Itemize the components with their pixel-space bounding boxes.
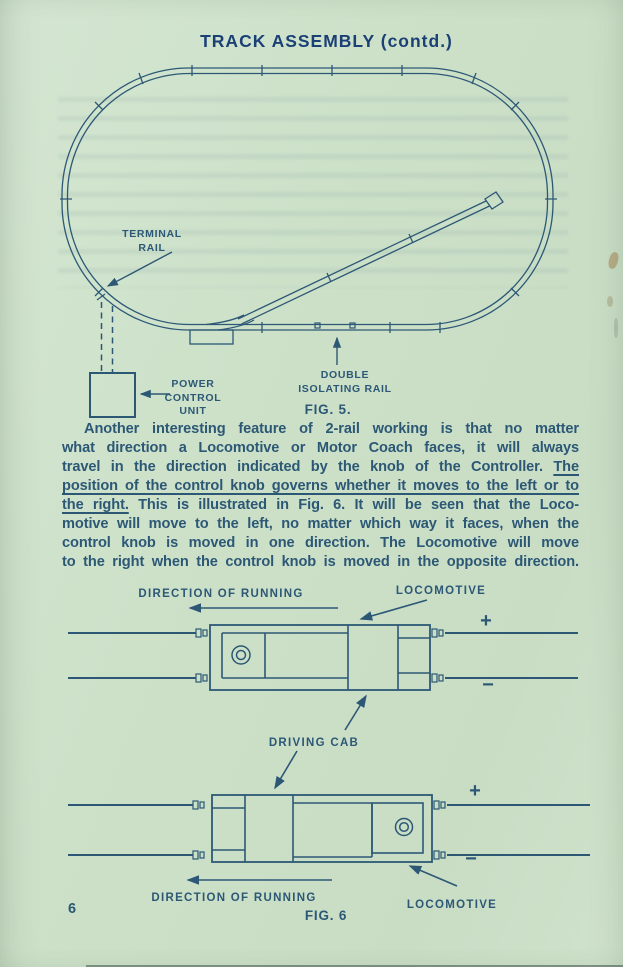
text-run: control knob is moved in one direction. … [62, 535, 579, 551]
paper-tear-mark-3 [614, 318, 618, 338]
paragraph-line: to the right when the control knob is mo… [62, 553, 579, 572]
paper-tear-mark-2 [607, 296, 613, 307]
minus-polarity-top: − [482, 674, 494, 696]
locomotive-label-bottom: LOCOMOTIVE [407, 899, 497, 911]
fig5-track-plan: TERMINAL RAIL POWER CONTROL UNIT DOUBLE … [0, 55, 623, 420]
text-run: to the right when the control knob is mo… [62, 554, 579, 570]
terminal-rail-arrow-icon [108, 252, 172, 286]
power-control-unit-label-line3: UNIT [179, 405, 206, 417]
plus-polarity-top: + [480, 610, 492, 632]
fig6-locomotive-diagrams: DIRECTION OF RUNNING LOCOMOTIVE + − [0, 575, 623, 927]
page-number: 6 [68, 901, 76, 917]
paragraph-line: Another interesting feature of 2-rail wo… [62, 420, 579, 439]
fig6-top-diagram: DIRECTION OF RUNNING LOCOMOTIVE + − [68, 585, 578, 696]
minus-polarity-bottom: − [465, 848, 477, 870]
double-isolating-rail-marks [315, 323, 355, 328]
driving-cab-callout: DRIVING CAB [269, 696, 366, 788]
driving-cab-arrow-up-icon [345, 696, 366, 730]
text-run: what direction a Locomotive or Motor Coa… [62, 440, 579, 456]
wiring-dashed-lines [102, 302, 113, 373]
text-run: Another interesting feature of 2-rail wo… [84, 421, 579, 437]
text-run: travel in the direction indicated by the… [62, 459, 553, 475]
underlined-text-run: The [553, 459, 579, 475]
page-title: TRACK ASSEMBLY (contd.) [0, 31, 623, 52]
power-control-unit-box [90, 373, 135, 417]
underlined-text-run: the right. [62, 497, 129, 513]
plus-polarity-bottom: + [469, 780, 481, 802]
fig6-caption: FIG. 6 [305, 908, 347, 923]
fig6-bottom-diagram: + − DIRECTION [68, 780, 590, 923]
terminal-rail-label-line2: RAIL [138, 242, 165, 254]
power-control-unit-label: POWER [171, 378, 214, 390]
locomotive-bottom [193, 795, 445, 862]
double-isolating-rail-label-line2: ISOLATING RAIL [298, 383, 392, 395]
double-isolating-rail-label: DOUBLE [321, 369, 370, 381]
direction-of-running-label-bottom: DIRECTION OF RUNNING [151, 892, 316, 904]
direction-of-running-label-top: DIRECTION OF RUNNING [138, 588, 303, 600]
locomotive-arrow-icon-top [361, 600, 427, 619]
driving-cab-arrow-down-icon [275, 751, 297, 788]
rails-bottom [68, 805, 590, 855]
paragraph-line: the right. This is illustrated in Fig. 6… [62, 496, 579, 515]
underlined-text-run: position of the control knob governs whe… [62, 478, 579, 494]
couplings-top [196, 629, 443, 682]
uncoupling-rail [190, 330, 233, 344]
text-run: This is illustrated in Fig. 6. It will b… [129, 497, 579, 513]
text-run: motive will move to the left, no matter … [62, 516, 579, 532]
driving-cab-label: DRIVING CAB [269, 737, 359, 749]
paragraph-line: motive will move to the left, no matter … [62, 515, 579, 534]
power-control-unit [90, 302, 135, 417]
locomotive-arrow-icon-bottom [410, 866, 457, 886]
fig5-caption: FIG. 5. [305, 402, 352, 417]
paragraph-line: what direction a Locomotive or Motor Coa… [62, 439, 579, 458]
locomotive-label-top: LOCOMOTIVE [396, 585, 486, 597]
rails-top [68, 633, 578, 678]
body-paragraph: Another interesting feature of 2-rail wo… [62, 420, 579, 572]
paragraph-line: control knob is moved in one direction. … [62, 534, 579, 553]
terminal-rail-label: TERMINAL [122, 228, 182, 240]
paragraph-line: travel in the direction indicated by the… [62, 458, 579, 477]
paragraph-line: position of the control knob governs whe… [62, 477, 579, 496]
power-control-unit-label-line2: CONTROL [165, 392, 222, 404]
locomotive-top [196, 625, 443, 690]
manual-page: TRACK ASSEMBLY (contd.) TERMINAL [0, 0, 623, 967]
